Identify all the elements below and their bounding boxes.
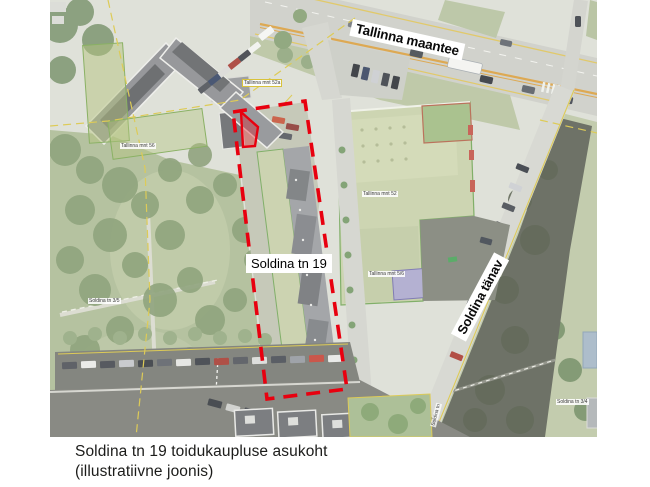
parcel-label-soldina-tn-3-4: Soldina tn 3/4	[556, 399, 589, 405]
site-label: Soldina tn 19	[246, 254, 332, 273]
parcel-label-tallinna-mnt-56: Tallinna mnt 56	[120, 143, 156, 149]
parcel-label-tallinna-mnt-5-6: Tallinna mnt 5/6	[368, 271, 405, 277]
parcel-label-tallinna-mnt-52a: Tallinna mnt 52a	[242, 79, 282, 87]
aerial-photo	[50, 0, 597, 437]
parcel-label-tallinna-mnt-52: Tallinna mnt 52	[362, 191, 398, 197]
caption-line-2: (illustratiivne joonis)	[75, 462, 328, 482]
caption: Soldina tn 19 toidukaupluse asukoht (ill…	[75, 442, 328, 482]
parcel-label-soldina-tn-3-5: Soldina tn 3/5	[88, 298, 121, 304]
figure: Tallinna maantee Soldina tänav Soldina t…	[0, 0, 650, 487]
aerial-map: Tallinna maantee Soldina tänav Soldina t…	[50, 0, 597, 437]
caption-line-1: Soldina tn 19 toidukaupluse asukoht	[75, 442, 328, 462]
